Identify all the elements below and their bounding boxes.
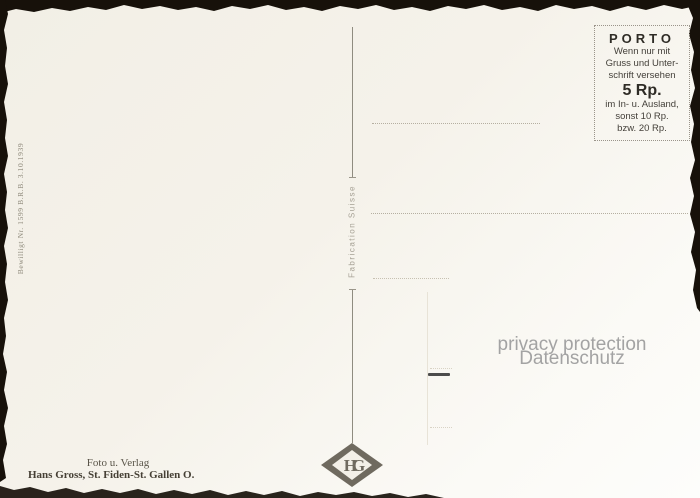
deckled-edge-left xyxy=(0,0,8,482)
deckled-edge-top xyxy=(0,0,700,13)
publisher-imprint: Foto u. Verlag Hans Gross, St. Fiden-St.… xyxy=(28,457,208,481)
redaction-dash xyxy=(428,373,450,376)
porto-line: Wenn nur mit xyxy=(595,46,689,58)
privacy-watermark: privacy protection Datenschutz xyxy=(462,338,682,366)
publisher-line: Hans Gross, St. Fiden-St. Gallen O. xyxy=(28,469,208,481)
postcard-back: PORTO Wenn nur mit Gruss und Unter- schr… xyxy=(0,0,700,498)
fabrication-suisse-label: Fabrication Suisse xyxy=(348,172,357,292)
watermark-line: Datenschutz xyxy=(462,352,682,366)
address-line-short xyxy=(373,278,449,279)
hg-diamond-logo-icon: HG xyxy=(320,442,384,488)
authorization-marking: Bewilligt Nr. 1599 B.R.B. 3.10.1939 xyxy=(16,136,25,281)
address-line xyxy=(371,213,688,214)
address-remnant-dots xyxy=(430,427,452,428)
center-divider-upper xyxy=(352,27,353,177)
center-divider-lower xyxy=(352,290,353,443)
porto-line: sonst 10 Rp. xyxy=(595,111,689,123)
porto-line: im In- u. Ausland, xyxy=(595,99,689,111)
faint-crease-line xyxy=(427,292,428,445)
address-line xyxy=(372,123,540,124)
porto-line: bzw. 20 Rp. xyxy=(595,123,689,135)
porto-line: schrift versehen xyxy=(595,70,689,82)
porto-line: Gruss und Unter- xyxy=(595,58,689,70)
porto-rate: 5 Rp. xyxy=(595,82,689,99)
porto-title: PORTO xyxy=(595,31,689,46)
porto-rate-box: PORTO Wenn nur mit Gruss und Unter- schr… xyxy=(594,25,690,141)
address-remnant-dots xyxy=(430,368,452,369)
publisher-line: Foto u. Verlag xyxy=(28,457,208,469)
